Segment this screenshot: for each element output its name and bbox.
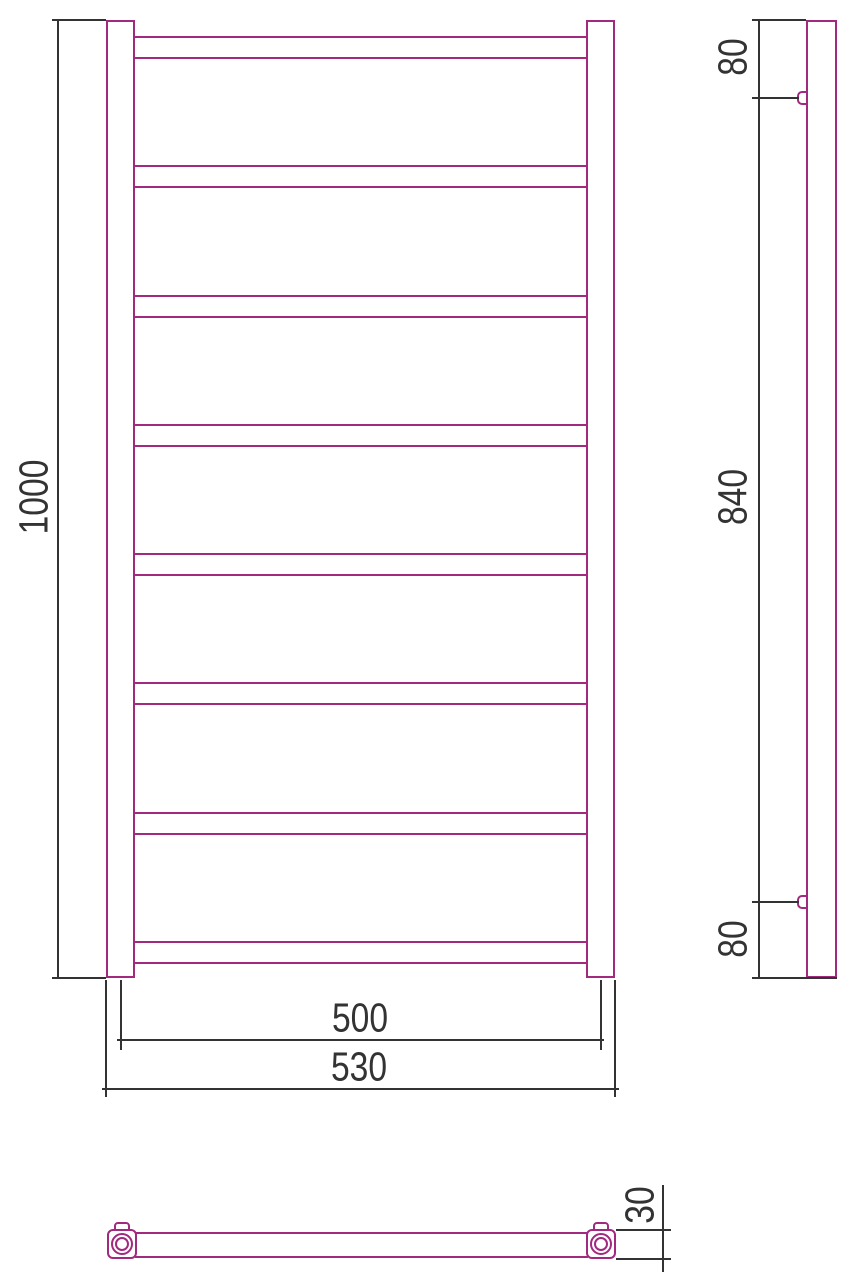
- rung: [135, 36, 586, 59]
- depth-dimension-label: 30: [620, 1186, 661, 1223]
- height-ext-top: [52, 19, 106, 21]
- side-tick-bottom: [752, 977, 837, 979]
- overall-width-ext-right: [614, 980, 616, 1097]
- axis-width-dimension-label: 500: [332, 998, 388, 1039]
- rung: [135, 424, 586, 447]
- rung: [135, 941, 586, 964]
- overall-width-dimension-label: 530: [331, 1047, 387, 1088]
- bottom-offset-dimension-label: 80: [713, 920, 754, 957]
- plan-tube: [135, 1232, 588, 1258]
- height-dimension-line: [57, 19, 59, 978]
- side-tick-lower-bracket: [752, 901, 799, 903]
- right-fitting-inner-ring: [594, 1237, 608, 1251]
- technical-drawing-canvas: 1000 500 530 80 840 80: [0, 0, 856, 1280]
- side-tick-upper-bracket: [752, 97, 799, 99]
- left-fitting-inner-ring: [115, 1237, 129, 1251]
- side-tick-top: [752, 19, 806, 21]
- rung: [135, 812, 586, 835]
- right-rail: [586, 20, 615, 978]
- left-rail: [106, 20, 135, 978]
- rung: [135, 165, 586, 188]
- overall-width-ext-left: [105, 980, 107, 1097]
- height-dimension-label: 1000: [14, 460, 55, 535]
- height-ext-bottom: [52, 977, 106, 979]
- bracket-span-dimension-label: 840: [713, 469, 754, 525]
- rung: [135, 553, 586, 576]
- rung: [135, 295, 586, 318]
- side-dimension-line: [758, 19, 760, 978]
- rung: [135, 682, 586, 705]
- top-offset-dimension-label: 80: [713, 38, 754, 75]
- side-profile-body: [806, 20, 837, 978]
